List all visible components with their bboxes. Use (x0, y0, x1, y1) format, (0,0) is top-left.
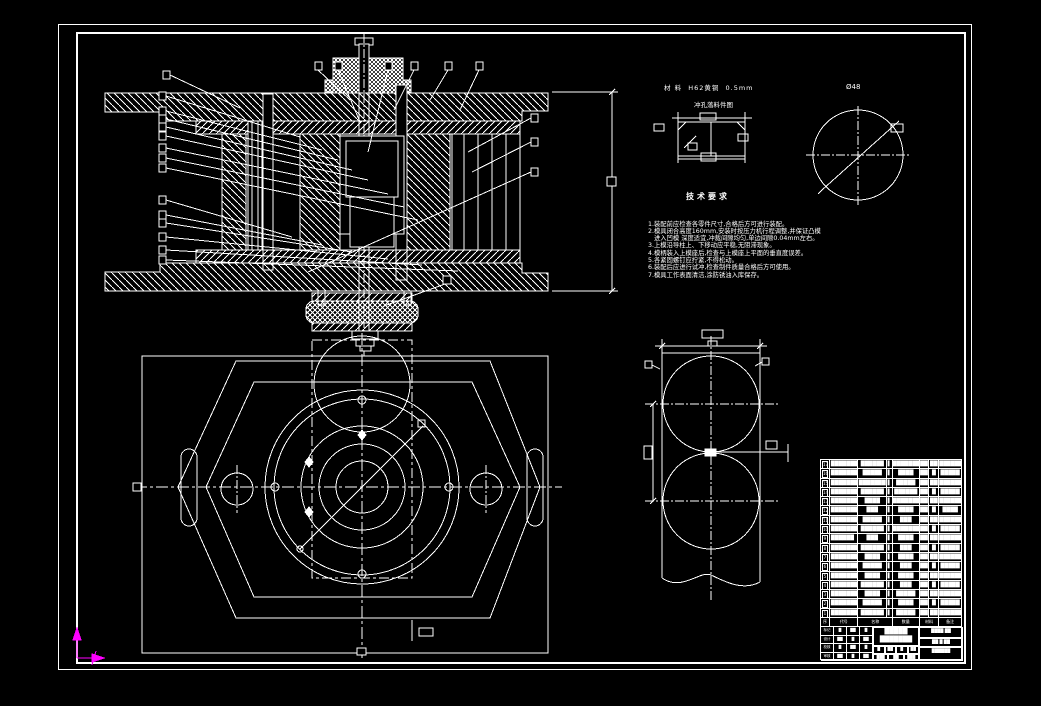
note-line: 1.装配前应检查各零件尺寸,合格后方可进行装配。 (648, 221, 873, 228)
bom-table-row: 10 ██████████ ██████ ▌ ████████ ██ █ ███… (821, 525, 961, 534)
title-block-scale-cells: ████ ██ ██ █ ██ ██████ (919, 627, 963, 661)
section-view (105, 34, 548, 356)
signature-row: 设计 ██ █ ██ (821, 636, 873, 645)
note-line: 7.模具工作表面清洁,涂防锈油入库保存。 (648, 272, 873, 279)
title-block-subrow-2: ███ ██ ███ (873, 654, 919, 662)
bom-table-row: 16 ████████ █████ ▌ ████ ██ █ █████ (821, 469, 961, 478)
bom-table-row: 14 ██████████ ██████ ▌ ██████ ██ █ █████ (821, 488, 961, 497)
ucs-axis-icon (73, 628, 104, 665)
technical-notes-heading: 技术要求 (686, 191, 730, 202)
bom-table-row: 12 ████████ ███ ▌ ████ ██ █ ████ (821, 506, 961, 515)
bom-table-row: 17 █████████ ██████ ▌ ███████ ██ ██ ████… (821, 460, 961, 469)
bom-table: 17 █████████ ██████ ▌ ███████ ██ ██ ████… (821, 460, 961, 618)
title-block-signature-grid: 标记 █ ██ █ 设计 ██ █ ██ 校核 █ ██ █ (821, 627, 873, 661)
title-block-subrow-1: █ ██ █ ██ (873, 646, 919, 654)
detail-view-caption: 冲孔落料件图 (694, 99, 733, 109)
height-dimension (552, 89, 618, 294)
title-block: 17 █████████ ██████ ▌ ███████ ██ ██ ████… (820, 459, 962, 660)
bom-table-row: 8 █████████ ██████ ▌ ███ ██ █ █████ (821, 544, 961, 553)
detail-view-material-label: 材 料 H62黄铜 0.5mm (664, 82, 754, 92)
bom-table-row: 1 ████████ ██████ ▌ █████ ██ ██ ██████ (821, 609, 961, 618)
drawing-title-cell: █████ ███████ (873, 627, 919, 646)
title-block-bottom: 标记 █ ██ █ 设计 ██ █ ██ 校核 █ ██ █ (821, 627, 961, 661)
note-line: 4.模柄装入上模座后,检查与上模座上平面的垂直度误差。 (648, 250, 873, 257)
bom-table-row: 5 ████████ ████ ▌ ████ ██ ██ ██████ (821, 572, 961, 581)
plan-view (133, 333, 562, 658)
bom-table-row: 13 ███████ ████ ▌ ████████ ██ ██ ██████ (821, 497, 961, 506)
circle-view-diameter-label: Ø48 (846, 83, 860, 91)
cad-drawing-canvas[interactable]: 技术要求 1.装配前应检查各零件尺寸,合格后方可进行装配。2.模具闭合高度160… (0, 0, 1041, 706)
bom-table-row: 11 █████████ █████ ▌ ███ ██ ██ ██████ (821, 516, 961, 525)
blank-circle-view (806, 106, 910, 206)
strip-layout-view (644, 330, 788, 600)
bom-table-row: 15 █████████ ███████ ▌ █████ ██ ██ █████… (821, 479, 961, 488)
bom-table-row: 2 █████████ █████ ▌ ████ ██ █ █████ (821, 599, 961, 608)
signature-row: 校核 █ ██ █ (821, 644, 873, 653)
note-line: 3.上模沿导柱上、下移动应平稳,无阻滞现象。 (648, 242, 873, 249)
bom-table-row: 9 ██████ ███ ▌ ████ ██ ██ ███████ (821, 534, 961, 543)
bom-table-row: 3 ███████ ████ ▌ █████ ██ ██ ██████ (821, 590, 961, 599)
bom-table-row: 7 ████████ ████ ▌ ████ ██ ██ ██████ (821, 553, 961, 562)
signature-row: 标记 █ ██ █ (821, 627, 873, 636)
detail-part-view (654, 112, 752, 163)
bom-table-row: 4 █████████ ██████ ▌ ███ ██ █ █████ (821, 581, 961, 590)
signature-row: 审核 ██ █ ██ (821, 653, 873, 662)
bom-header-row: 序号 代号 名称 数量 材料 备注 (821, 618, 961, 627)
bom-table-row: 6 ██████████ █████ ▌ ███ ██ █ █████ (821, 562, 961, 571)
technical-notes: 1.装配前应检查各零件尺寸,合格后方可进行装配。2.模具闭合高度160mm,安装… (648, 206, 873, 294)
note-line: 6.装配后应进行试冲,检查制件质量合格后方可使用。 (648, 264, 873, 271)
